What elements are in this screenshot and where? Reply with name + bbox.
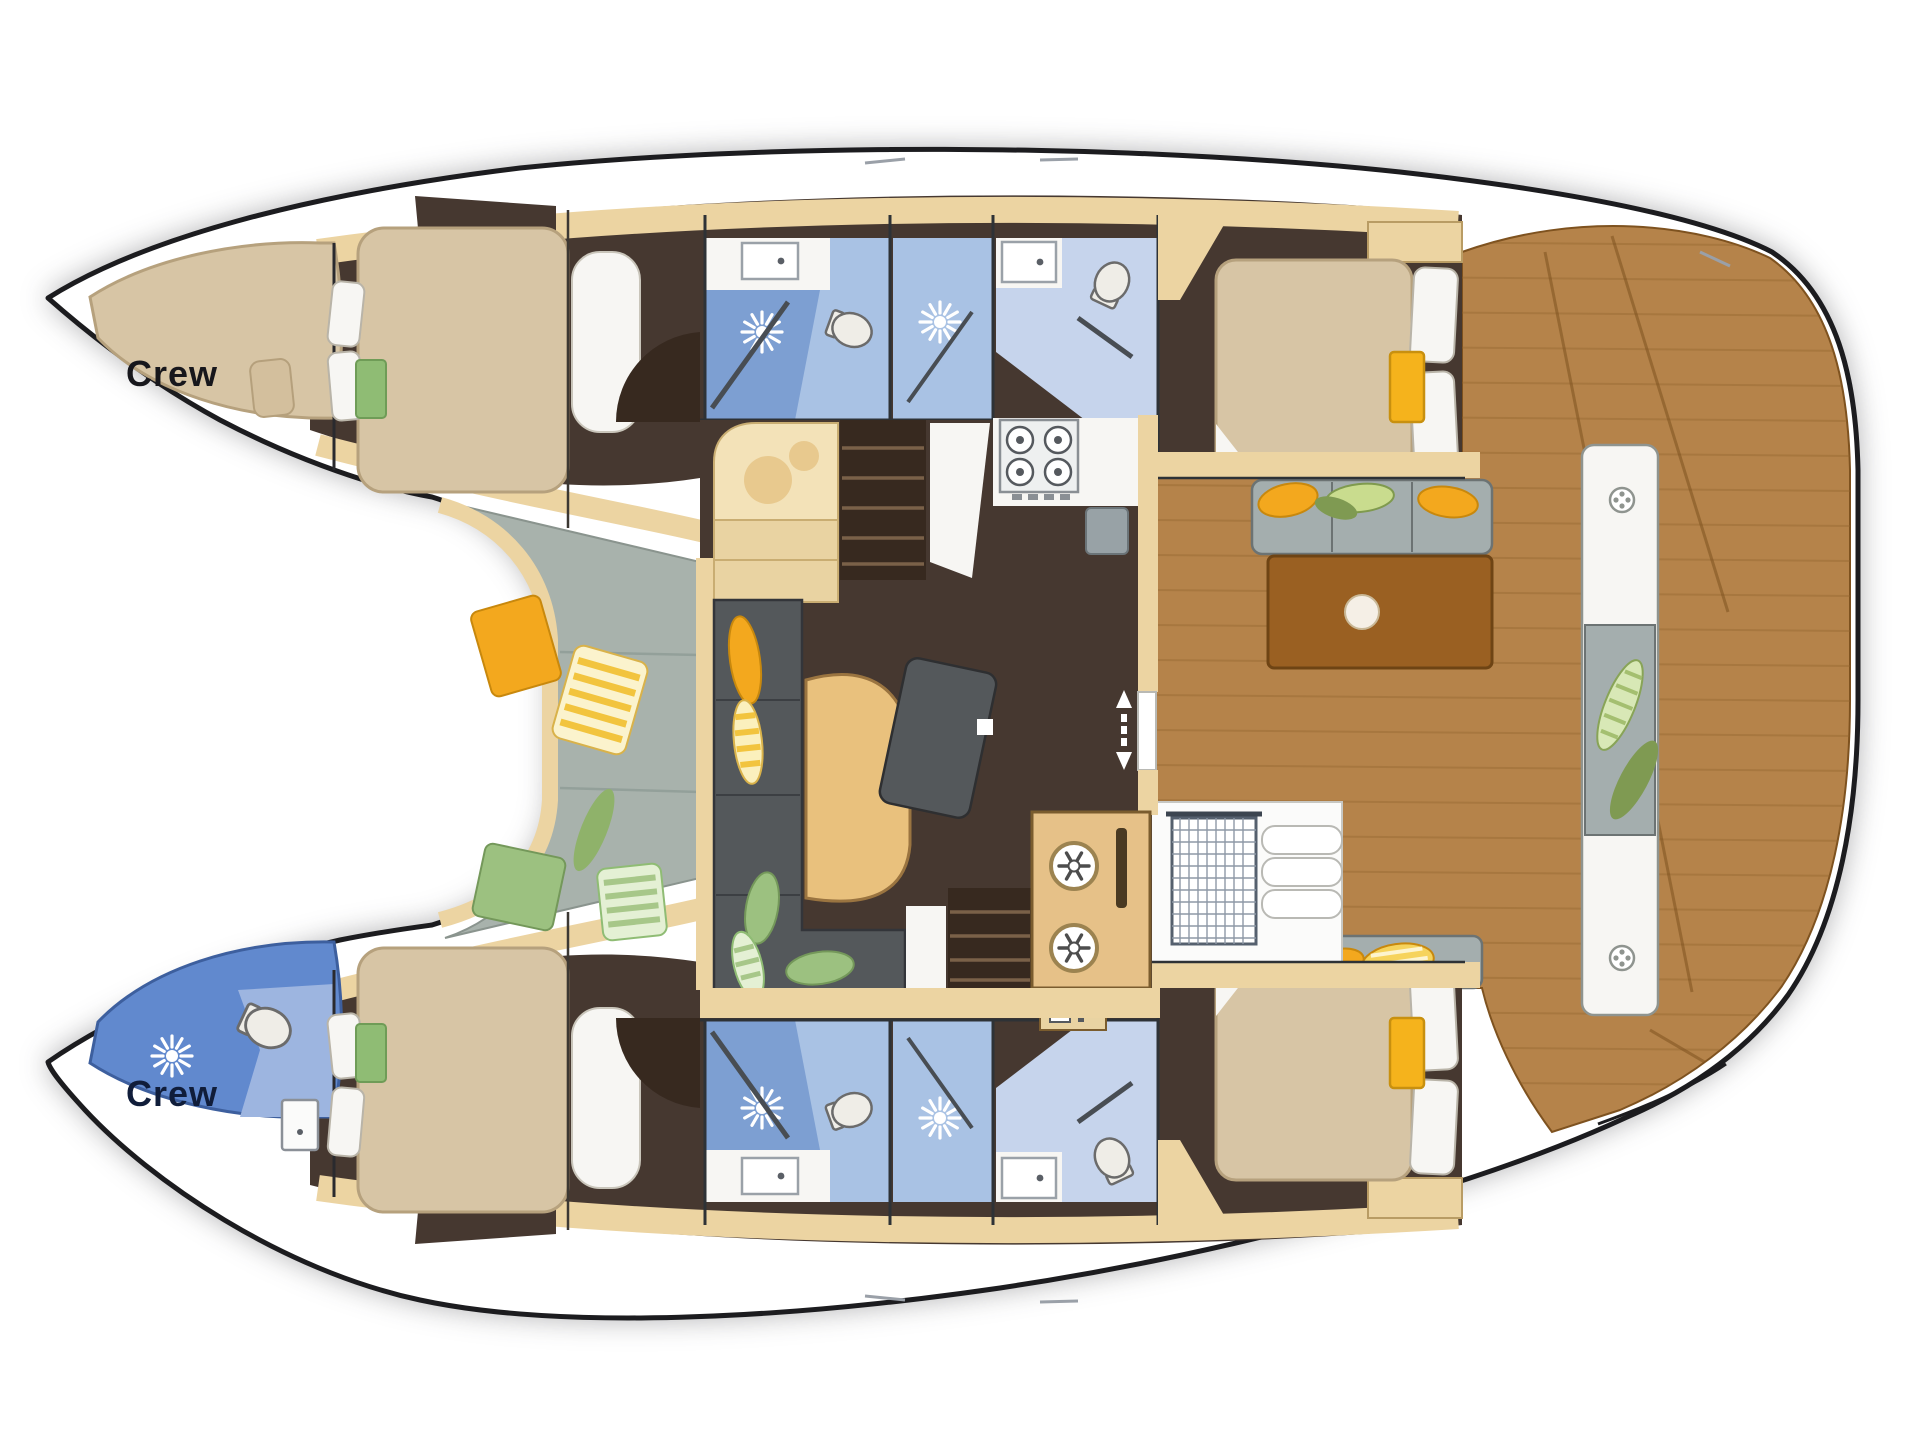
aft-alcove (1150, 802, 1342, 970)
port-aft-pillow-yellow (1390, 352, 1424, 422)
starboard-bathroom-aft (996, 1020, 1158, 1202)
four-burner-stove-icon (1000, 420, 1078, 500)
companionway-white-2 (906, 906, 946, 988)
alcove-steps (1262, 826, 1342, 918)
crew-label-starboard: Crew (126, 1073, 218, 1114)
transom-bench (1582, 445, 1667, 1015)
crew-pillow-tan (249, 358, 295, 418)
starboard-fore-bed (358, 948, 568, 1212)
sink-basin-icon-2 (1002, 242, 1056, 282)
galley-sink-round (744, 456, 792, 504)
port-aft-pillow-1 (1410, 267, 1459, 363)
sliding-door (1138, 692, 1156, 770)
starboard-bathroom-fore (705, 1020, 890, 1202)
catamaran-floor-plan: Crew (0, 0, 1920, 1440)
galley-appliance (1086, 508, 1128, 554)
starboard-fore-cushion-green (356, 1024, 386, 1082)
port-aft-wardrobe (1368, 222, 1462, 262)
sink-basin-icon-crew (282, 1100, 318, 1150)
cleat-icon (1610, 488, 1634, 512)
sink-basin-icon (742, 243, 798, 279)
sink-basin-icon-3 (742, 1158, 798, 1194)
lounge-pillow-green (471, 842, 567, 931)
port-fore-pillow-1 (327, 281, 366, 348)
galley-sink-round-2 (789, 441, 819, 471)
salon-remote (977, 719, 993, 735)
starboard-shower-mid (893, 1020, 993, 1202)
port-bathroom-fore (705, 238, 890, 420)
starboard-aft-pillow-yellow (1390, 1018, 1424, 1088)
starboard-aft-bed (1216, 970, 1412, 1180)
sink-basin-icon-4 (1002, 1158, 1056, 1198)
stairs-port-hull (840, 420, 926, 580)
starboard-aft-pillow-2 (1410, 1079, 1459, 1175)
lounge-pillow-green-striped (596, 863, 667, 941)
snowflake-fridge-icon-2 (1051, 925, 1097, 971)
port-fore-cushion-green (356, 360, 386, 418)
cleat-icon-2 (1610, 946, 1634, 970)
galley-island (714, 423, 838, 602)
snowflake-fridge-icon (1051, 843, 1097, 889)
salon-aft-sill (700, 988, 1160, 1018)
port-bathroom-aft (996, 238, 1158, 420)
fridge-handle (1116, 828, 1127, 908)
port-fore-bed (358, 228, 568, 492)
port-shower-mid (893, 238, 993, 420)
forward-lounge (440, 502, 700, 941)
port-aft-bed (1216, 260, 1412, 470)
crew-label-port: Crew (126, 353, 218, 394)
grid-hatch-icon (1166, 814, 1262, 944)
starboard-aft-wardrobe (1368, 1178, 1462, 1218)
starboard-fore-pillow-2 (327, 1087, 365, 1158)
cockpit-table-lamp (1345, 595, 1379, 629)
